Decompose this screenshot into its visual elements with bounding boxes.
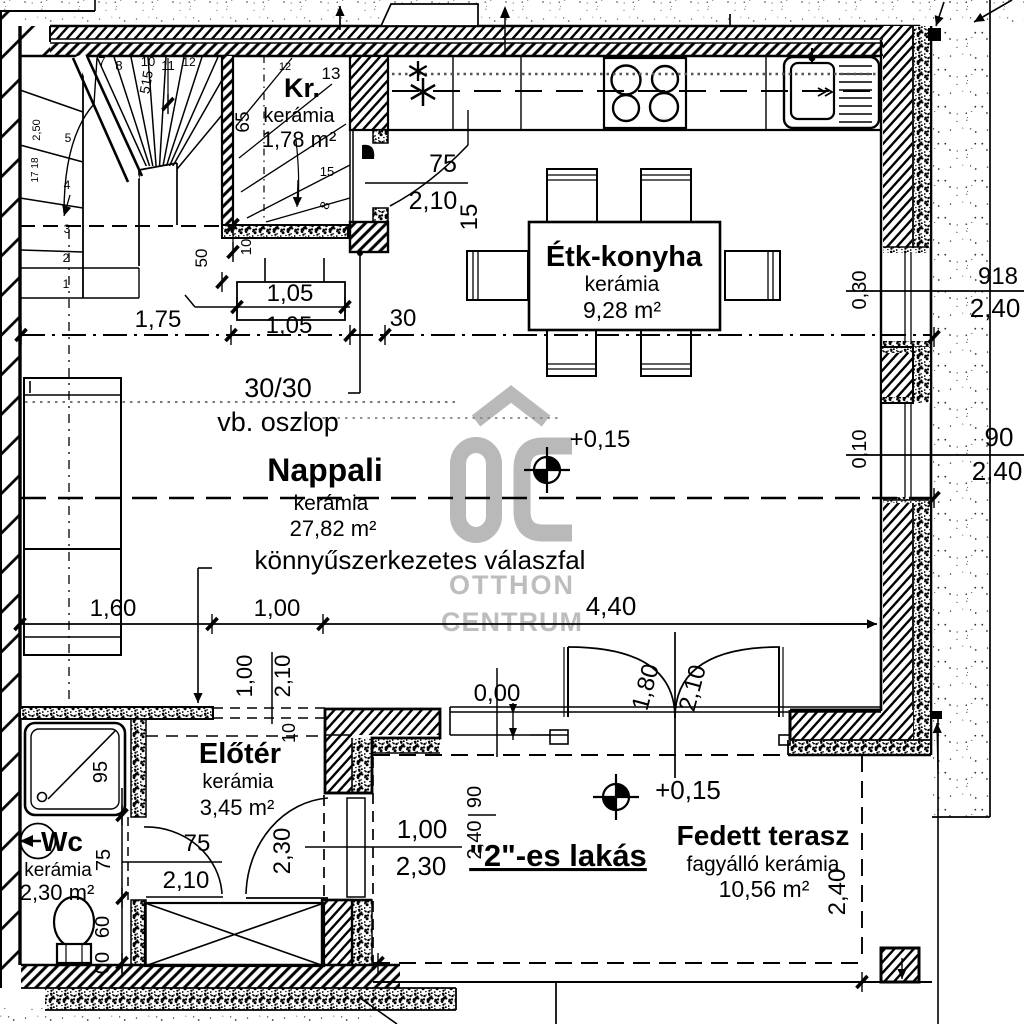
svg-text:kerámia: kerámia <box>585 273 660 296</box>
svg-text:13: 13 <box>322 64 341 83</box>
svg-text:9,28 m²: 9,28 m² <box>583 297 661 323</box>
svg-text:kerámia: kerámia <box>294 492 369 515</box>
svg-text:65: 65 <box>233 111 254 132</box>
svg-text:1,05: 1,05 <box>266 312 313 339</box>
svg-text:90: 90 <box>464 786 486 808</box>
svg-text:10,56 m²: 10,56 m² <box>719 876 810 902</box>
svg-text:10: 10 <box>238 239 255 256</box>
svg-text:Kr.: Kr. <box>284 73 320 103</box>
svg-text:2,40: 2,40 <box>972 456 1023 486</box>
svg-text:kerámia: kerámia <box>202 771 274 793</box>
svg-text:15: 15 <box>320 164 334 179</box>
svg-text:+0,15: +0,15 <box>655 775 721 805</box>
svg-text:kerámia: kerámia <box>24 860 92 881</box>
svg-text:00: 00 <box>92 952 114 974</box>
svg-text:0,10: 0,10 <box>849 430 871 469</box>
svg-text:2,10: 2,10 <box>270 655 295 698</box>
svg-text:0,30: 0,30 <box>849 271 871 310</box>
svg-text:3,45 m²: 3,45 m² <box>200 795 275 820</box>
svg-text:5: 5 <box>65 131 72 145</box>
svg-text:1,60: 1,60 <box>90 595 137 622</box>
svg-text:7: 7 <box>98 54 105 69</box>
svg-text:CENTRUM: CENTRUM <box>441 607 583 637</box>
svg-text:2,10: 2,10 <box>163 867 210 894</box>
svg-text:1,05: 1,05 <box>267 280 314 307</box>
svg-text:könnyűszerkezetes válaszfal: könnyűszerkezetes válaszfal <box>255 545 586 575</box>
svg-text:30/30: 30/30 <box>244 373 312 403</box>
svg-text:2,40: 2,40 <box>464 821 486 860</box>
svg-text:"2"-es lakás: "2"-es lakás <box>469 838 647 873</box>
svg-text:10: 10 <box>141 54 155 69</box>
svg-text:0,00: 0,00 <box>474 680 521 707</box>
svg-text:2: 2 <box>63 251 70 265</box>
svg-text:2,30: 2,30 <box>396 851 447 881</box>
svg-text:75: 75 <box>93 849 115 871</box>
svg-text:95: 95 <box>90 761 112 783</box>
svg-text:1,78 m²: 1,78 m² <box>262 127 337 152</box>
svg-text:11: 11 <box>161 58 175 73</box>
svg-text:8: 8 <box>115 58 122 73</box>
svg-text:918: 918 <box>978 263 1018 290</box>
svg-text:12: 12 <box>182 55 196 69</box>
svg-text:2,40: 2,40 <box>970 293 1021 323</box>
svg-text:fagyálló kerámia: fagyálló kerámia <box>687 853 840 876</box>
svg-text:27,82 m²: 27,82 m² <box>290 516 377 541</box>
svg-text:2,40: 2,40 <box>824 869 851 916</box>
svg-text:4: 4 <box>64 178 71 192</box>
svg-text:2,50: 2,50 <box>31 119 43 140</box>
svg-text:1,00: 1,00 <box>254 595 301 622</box>
svg-text:Előtér: Előtér <box>199 738 281 770</box>
svg-text:75: 75 <box>429 150 457 178</box>
svg-text:15: 15 <box>456 204 483 231</box>
svg-text:50: 50 <box>192 249 211 268</box>
svg-text:60: 60 <box>92 916 114 938</box>
svg-text:1: 1 <box>63 277 70 291</box>
svg-text:30: 30 <box>390 305 417 332</box>
svg-text:1,00: 1,00 <box>397 814 448 844</box>
svg-text:4,40: 4,40 <box>586 591 637 621</box>
svg-text:Étk-konyha: Étk-konyha <box>546 239 703 273</box>
svg-text:12: 12 <box>279 61 291 73</box>
svg-text:2,30 m²: 2,30 m² <box>20 880 95 905</box>
svg-text:Wc: Wc <box>41 826 83 857</box>
svg-text:vb. oszlop: vb. oszlop <box>217 407 339 437</box>
svg-text:Fedett terasz: Fedett terasz <box>677 820 850 851</box>
svg-text:90: 90 <box>985 422 1014 452</box>
svg-text:kerámia: kerámia <box>263 105 335 127</box>
svg-text:10: 10 <box>279 723 299 743</box>
svg-text:1,75: 1,75 <box>135 306 182 333</box>
svg-text:Nappali: Nappali <box>267 452 383 488</box>
svg-text:1,00: 1,00 <box>232 655 257 698</box>
svg-text:17 18: 17 18 <box>30 157 41 182</box>
svg-text:2,10: 2,10 <box>409 187 458 215</box>
svg-text:+0,15: +0,15 <box>570 426 631 453</box>
svg-text:3: 3 <box>64 222 71 236</box>
svg-text:2,30: 2,30 <box>269 828 296 875</box>
svg-text:75: 75 <box>184 830 211 857</box>
